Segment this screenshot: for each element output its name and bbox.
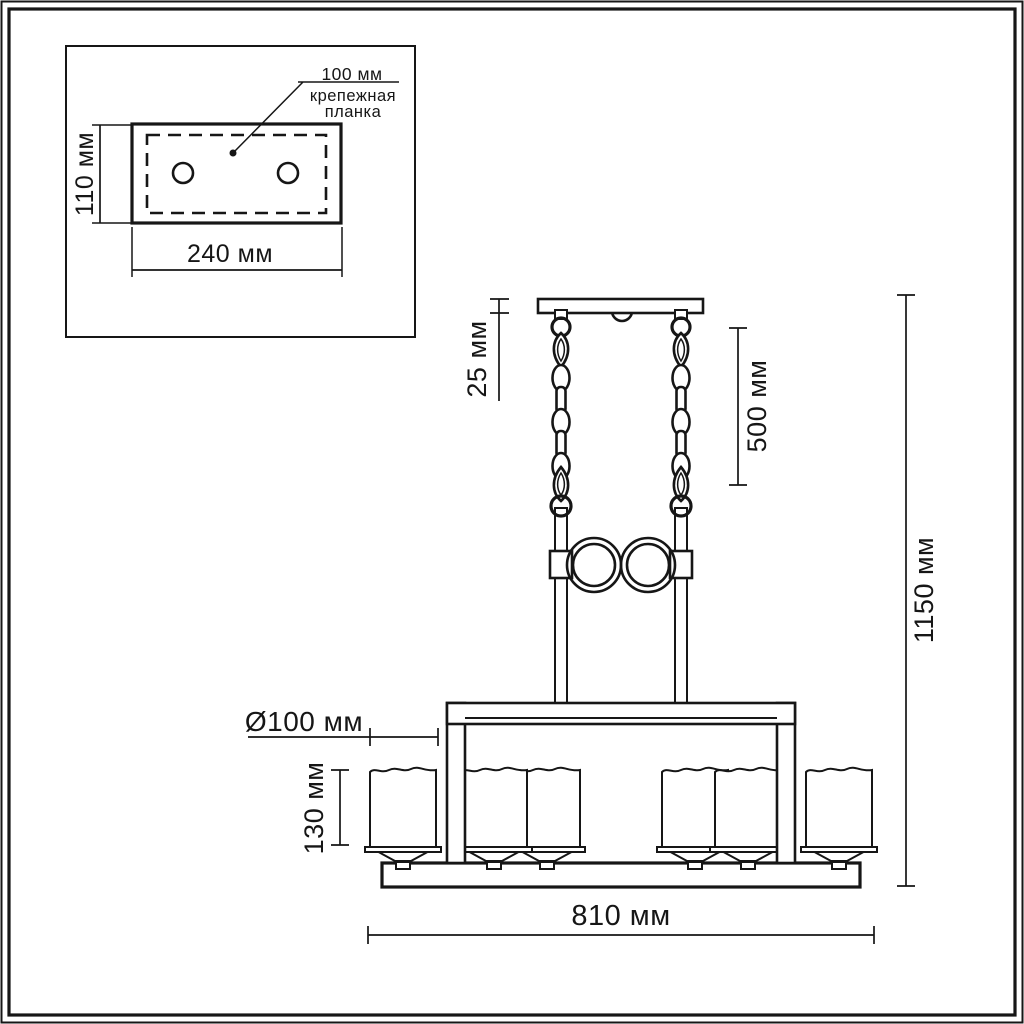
decor-ring-right-inner (627, 544, 669, 586)
decor-ring-left-outer (567, 538, 621, 592)
chain-left (551, 310, 571, 516)
total-width-label: 810 мм (571, 900, 670, 932)
frame-post-right (777, 703, 795, 863)
hanger-rod-left (555, 508, 567, 706)
decor-ring-right-outer (621, 538, 675, 592)
shade-2 (456, 768, 532, 869)
shade-6 (801, 768, 877, 869)
shade-1 (365, 768, 441, 869)
chain-length-label: 500 мм (742, 360, 772, 453)
mounting-plate-inset: 100 мм крепежная планка 110 мм 240 мм (66, 46, 415, 337)
inset-height-label: 110 мм (71, 132, 99, 216)
chandelier-drawing (365, 299, 877, 887)
inset-part-name-line2: планка (325, 103, 382, 121)
mounting-hole-right (278, 163, 298, 183)
mounting-hole-left (173, 163, 193, 183)
base-bar (382, 863, 860, 887)
technical-drawing-canvas: 100 мм крепежная планка 110 мм 240 мм (0, 0, 1024, 1024)
inset-spacing-label: 100 мм (321, 64, 382, 84)
chain-right (671, 310, 691, 516)
shade-height-dimension (331, 770, 349, 845)
shade-diameter-label: Ø100 мм (245, 706, 363, 737)
shade-5 (710, 768, 786, 869)
hanger-rod-right (675, 508, 687, 706)
frame-post-left (447, 703, 465, 863)
shade-height-label: 130 мм (299, 762, 329, 855)
mounting-plate-outline (132, 124, 341, 223)
drawing-page: 100 мм крепежная планка 110 мм 240 мм (0, 0, 1024, 1024)
frame-beam (447, 703, 795, 724)
total-height-label: 1150 мм (909, 537, 939, 643)
canopy-height-label: 25 мм (462, 320, 492, 397)
canopy-height-dimension (490, 299, 509, 401)
inset-width-label: 240 мм (187, 240, 273, 268)
decor-ring-left-inner (573, 544, 615, 586)
